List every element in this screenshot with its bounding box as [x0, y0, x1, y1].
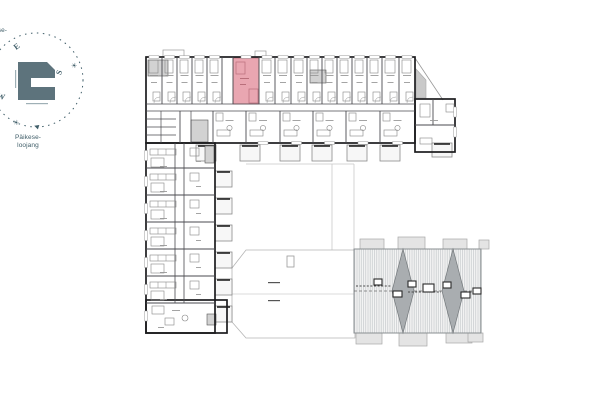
balcony	[380, 145, 400, 161]
balcony	[240, 145, 260, 161]
balcony	[215, 171, 232, 187]
balcony	[215, 198, 232, 214]
sunset-label: Päikese- loojang	[4, 134, 52, 150]
sun-path-circle	[0, 33, 83, 127]
balcony	[215, 225, 232, 241]
roof-dormer-tab	[398, 237, 425, 249]
roof-dormer-tab	[356, 333, 382, 344]
stair-core	[191, 120, 208, 142]
courtyard-outline	[246, 164, 354, 250]
roof-hatch	[423, 284, 434, 292]
stair-core	[205, 146, 214, 163]
balcony	[347, 145, 367, 161]
sunrise-label-line2: tõus	[0, 35, 14, 43]
highlighted-unit[interactable]	[233, 58, 259, 104]
balcony	[280, 145, 300, 161]
balcony	[215, 306, 232, 322]
balcony	[215, 279, 232, 295]
balcony	[215, 252, 232, 268]
site-logo	[15, 62, 55, 104]
roof-hatch	[461, 292, 470, 298]
roof-dormer-tab	[443, 239, 467, 249]
sunrise-label-line1: Päikese-	[0, 27, 14, 35]
site-logo-shape	[18, 62, 55, 100]
roof-hatch	[473, 288, 481, 294]
canopy-rooflight	[287, 256, 294, 267]
selected-apartment	[233, 58, 259, 104]
roof-hatch	[443, 282, 451, 288]
floor-plan-drawing	[0, 0, 600, 400]
sunrise-sun-icon: ☀	[71, 63, 77, 70]
sunset-label-line2: loojang	[4, 142, 52, 150]
balcony	[432, 143, 452, 157]
roof-hatch	[393, 291, 402, 297]
balcony	[312, 145, 332, 161]
roof-dormer-tab	[360, 239, 384, 249]
roof-hatch	[408, 281, 416, 287]
sunset-sun-icon: ☀	[13, 120, 19, 127]
sunrise-label: Päikese- tõus	[0, 27, 14, 43]
floorplan-canvas: E S W ☀ ☀ ◀ Päikese- loojang Päikese- tõ…	[0, 0, 600, 400]
roof-dormer-tab	[479, 240, 489, 249]
canopy-roof	[232, 250, 355, 338]
roof-dormer-tab	[399, 333, 427, 346]
roof-dormer-tab	[468, 333, 483, 342]
sunset-label-line1: Päikese-	[4, 134, 52, 142]
roof-hatch	[374, 279, 382, 285]
roof-plan	[354, 237, 489, 346]
